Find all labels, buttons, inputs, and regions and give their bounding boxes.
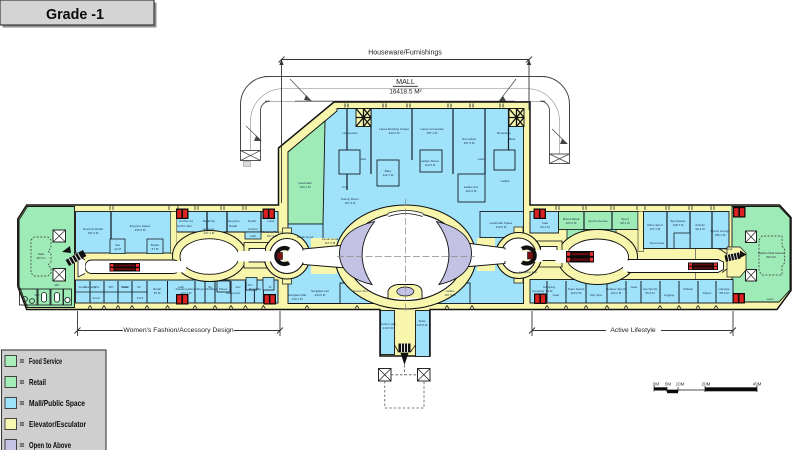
svg-text:Shoes: Shoes (703, 291, 712, 295)
svg-text:Anchor: Anchor (248, 227, 258, 231)
svg-text:Bkstr: Bkstr (509, 137, 516, 141)
svg-text:Anchor Ret: Anchor Ret (176, 224, 191, 228)
svg-text:WC: WC (35, 293, 41, 297)
svg-text:103.6 M: 103.6 M (571, 291, 582, 295)
svg-text:117.3 M: 117.3 M (325, 241, 336, 245)
svg-text:Retail Sp: Retail Sp (249, 287, 262, 291)
svg-text:Specialty: Specialty (84, 285, 97, 289)
svg-text:Lane: Lane (767, 297, 774, 301)
svg-text:Sport Gear: Sport Gear (650, 241, 665, 245)
svg-text:138.7 M: 138.7 M (673, 223, 684, 227)
svg-text:Camping: Camping (532, 289, 544, 293)
svg-text:Anchor Rm: Anchor Rm (352, 289, 368, 293)
svg-text:Elevator/Esculator: Elevator/Esculator (29, 419, 87, 429)
svg-text:Acc: Acc (235, 285, 241, 289)
svg-text:Cafe: Cafe (38, 252, 45, 256)
svg-text:112.4 M: 112.4 M (611, 291, 622, 295)
svg-text:Day Spa: Day Spa (590, 293, 602, 297)
svg-text:224.6 M: 224.6 M (389, 131, 400, 135)
svg-text:213.5 M: 213.5 M (417, 323, 428, 327)
svg-text:Anchor 24: Anchor 24 (179, 219, 193, 223)
svg-text:Camping Exp: Camping Exp (519, 270, 537, 274)
svg-text:157.3 M: 157.3 M (345, 201, 356, 205)
svg-text:95.3 M: 95.3 M (645, 291, 655, 295)
svg-text:Retail: Retail (229, 224, 237, 228)
svg-text:98.1 M: 98.1 M (620, 221, 630, 225)
svg-text:96.3 M: 96.3 M (695, 227, 705, 231)
svg-text:123.4 M: 123.4 M (181, 291, 192, 295)
svg-text:=: = (20, 440, 25, 450)
svg-text:Shop: Shop (196, 287, 203, 291)
svg-text:127.1 M: 127.1 M (204, 231, 215, 235)
svg-text:5M: 5M (665, 382, 672, 387)
svg-text:Athletic: Athletic (683, 287, 693, 291)
svg-text:Grade -1: Grade -1 (46, 6, 104, 23)
svg-text:10M: 10M (676, 382, 685, 387)
svg-text:Houseware: Houseware (342, 131, 358, 135)
svg-text:Gear: Gear (631, 285, 638, 289)
svg-text:96.2 M: 96.2 M (540, 225, 550, 229)
svg-text:Food: Food (93, 296, 100, 300)
svg-text:1st fl: 1st fl (137, 296, 144, 300)
svg-text:Active Lifestyle: Active Lifestyle (610, 327, 656, 334)
svg-text:157.3 m: 157.3 m (36, 256, 45, 260)
svg-text:187.1 M: 187.1 M (427, 131, 438, 135)
svg-text:Women's Fashion/Accessory Desi: Women's Fashion/Accessory Design (123, 327, 234, 334)
svg-text:Str: Str (137, 285, 141, 289)
svg-text:Retail: Retail (248, 219, 256, 223)
svg-text:213.5 M: 213.5 M (315, 293, 326, 297)
svg-text:903.3 M: 903.3 M (766, 255, 775, 259)
svg-text:157.3 M: 157.3 M (88, 231, 99, 235)
svg-text:=: = (20, 377, 25, 387)
svg-text:36 M: 36 M (154, 291, 161, 295)
svg-text:Bookstore: Bookstore (497, 131, 511, 135)
svg-text:88.2 M: 88.2 M (719, 291, 729, 295)
svg-text:Ladies Acc: Ladies Acc (226, 291, 241, 295)
svg-text:St: St (269, 285, 272, 289)
svg-text:Emporio: Emporio (228, 219, 240, 223)
svg-text:=: = (20, 398, 25, 408)
svg-text:113.5 M: 113.5 M (425, 163, 436, 167)
svg-text:Lane: Lane (478, 157, 485, 161)
svg-text:57 M: 57 M (152, 247, 159, 251)
svg-text:Fashion Park Avenue: Fashion Park Avenue (758, 251, 785, 255)
svg-text:42 M: 42 M (114, 247, 121, 251)
svg-text:Mall/Public Space: Mall/Public Space (29, 398, 85, 408)
svg-text:Hall: Hall (250, 234, 256, 238)
svg-text:MALL: MALL (396, 77, 415, 86)
svg-text:234.5 M: 234.5 M (135, 228, 146, 232)
svg-text:WC: WC (55, 283, 61, 287)
svg-text:16418.5 M²: 16418.5 M² (389, 89, 421, 96)
svg-text:Retail: Retail (29, 377, 46, 387)
svg-text:Lands Good: Lands Good (297, 235, 314, 239)
svg-text:157.3 M: 157.3 M (445, 293, 456, 297)
svg-text:Lane: Lane (268, 219, 275, 223)
svg-text:Sports Avenue: Sports Avenue (588, 219, 608, 223)
svg-text:142.1 M: 142.1 M (383, 173, 394, 177)
svg-text:20M: 20M (702, 382, 711, 387)
svg-text:=: = (20, 356, 25, 366)
svg-text:Retail: Retail (121, 285, 129, 289)
svg-text:Sports Hall: Sports Hall (718, 247, 733, 251)
svg-text:Open to Above: Open to Above (29, 440, 71, 450)
svg-text:157.3 M: 157.3 M (267, 234, 278, 238)
svg-text:224.5 M: 224.5 M (466, 189, 477, 193)
svg-text:Ladies: Ladies (501, 179, 510, 183)
svg-text:213.1 M: 213.1 M (292, 297, 303, 301)
svg-text:123.2 M: 123.2 M (566, 221, 577, 225)
svg-text:234.1 M: 234.1 M (300, 185, 311, 189)
svg-text:117.4 M: 117.4 M (650, 227, 661, 231)
svg-text:Retail Sp: Retail Sp (203, 219, 216, 223)
svg-text:=: = (20, 419, 25, 429)
svg-text:Cmp: Cmp (342, 185, 349, 189)
svg-text:Jogging: Jogging (664, 293, 675, 297)
svg-text:Houseware/Furnishings: Houseware/Furnishings (368, 50, 442, 57)
svg-text:Food Service: Food Service (29, 356, 62, 366)
svg-text:213.5 M: 213.5 M (496, 225, 507, 229)
svg-text:213.5 M: 213.5 M (383, 326, 394, 330)
svg-text:WC: WC (109, 285, 115, 289)
svg-text:157.3 M: 157.3 M (464, 141, 475, 145)
svg-text:Clothing: Clothing (205, 287, 216, 291)
svg-text:Hswr: Hswr (360, 157, 367, 161)
svg-text:Gear: Gear (553, 293, 560, 297)
svg-text:185.1 M: 185.1 M (715, 233, 726, 237)
